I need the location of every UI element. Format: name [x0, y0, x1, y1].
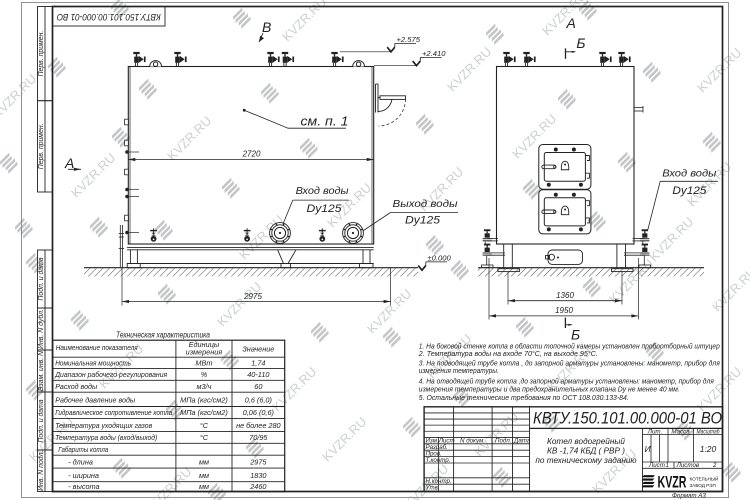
- svg-text:Подп.: Подп.: [495, 438, 511, 445]
- svg-text:Инв. N подл.: Инв. N подл.: [37, 451, 45, 491]
- svg-text:мм: мм: [199, 482, 209, 491]
- svg-text:- длина: - длина: [68, 458, 93, 467]
- svg-text:Масса: Масса: [671, 428, 690, 435]
- svg-text:2: 2: [712, 462, 717, 469]
- svg-text:Техническая характеристика: Техническая характеристика: [116, 331, 210, 340]
- svg-text:°С: °С: [200, 433, 209, 442]
- svg-text:не более 280: не более 280: [236, 421, 281, 430]
- svg-text:по техническому заданию: по техническому заданию: [535, 456, 636, 465]
- svg-text:40-110: 40-110: [247, 370, 269, 379]
- svg-text:мм: мм: [199, 471, 209, 480]
- svg-text:Значение: Значение: [242, 345, 274, 354]
- svg-text:N докум.: N докум.: [460, 438, 485, 445]
- svg-text:70/95: 70/95: [249, 433, 268, 442]
- svg-text:Листов: Листов: [676, 462, 700, 469]
- svg-text:ЗАВОД РЭП: ЗАВОД РЭП: [690, 483, 716, 488]
- svg-text:- высота: - высота: [68, 482, 99, 491]
- svg-text:Перв. примен.: Перв. примен.: [38, 31, 45, 77]
- svg-text:Т.контр.: Т.контр.: [426, 457, 451, 464]
- svg-text:см. п. 1: см. п. 1: [301, 115, 349, 129]
- svg-text:Номинальная мощность: Номинальная мощность: [55, 358, 131, 367]
- svg-text:МПа (кгс/см2): МПа (кгс/см2): [180, 396, 228, 405]
- svg-text:И: И: [645, 444, 652, 454]
- svg-text:Вход воды: Вход воды: [662, 168, 716, 180]
- svg-text:1: 1: [666, 462, 669, 469]
- svg-text:1,74: 1,74: [251, 358, 265, 367]
- svg-text:измерения: измерения: [186, 348, 223, 357]
- svg-text:Температура уходящих газов: Температура уходящих газов: [55, 421, 152, 430]
- svg-text:Котел водогрейный: Котел водогрейный: [547, 437, 625, 446]
- svg-text:В: В: [262, 19, 271, 35]
- svg-text:Формат А3: Формат А3: [672, 493, 706, 500]
- svg-text:Dy125: Dy125: [405, 215, 441, 227]
- svg-text:Подп. и дата: Подп. и дата: [37, 399, 45, 442]
- svg-text:+2.410: +2.410: [422, 49, 446, 58]
- svg-text:Вход воды: Вход воды: [296, 185, 349, 197]
- svg-text:0,06 (0,6): 0,06 (0,6): [243, 408, 274, 417]
- svg-text:МПа (кгс/см2): МПа (кгс/см2): [180, 408, 228, 417]
- svg-text:м3/ч: м3/ч: [197, 382, 212, 391]
- svg-text:Утв.: Утв.: [425, 484, 440, 491]
- svg-text:КВ -1,74 КБД ( РВР ): КВ -1,74 КБД ( РВР ): [547, 447, 625, 456]
- svg-text:мм: мм: [199, 458, 209, 467]
- svg-text:2975: 2975: [249, 458, 267, 467]
- svg-text:КВТУ.150.101.00.000-01 ВО: КВТУ.150.101.00.000-01 ВО: [533, 409, 722, 428]
- svg-text:°С: °С: [200, 421, 209, 430]
- svg-text:Рабочее давление воды: Рабочее давление воды: [55, 396, 136, 405]
- svg-text:Расход воды: Расход воды: [55, 382, 98, 391]
- svg-text:Гидравлическое сопротивление к: Гидравлическое сопротивление котла: [55, 408, 172, 417]
- svg-text:КОТЕЛЬНЫЙ: КОТЕЛЬНЫЙ: [690, 475, 719, 482]
- svg-text:Габариты котла: Габариты котла: [58, 445, 108, 454]
- svg-text:Масштаб: Масштаб: [697, 428, 720, 435]
- svg-text:Дата: Дата: [513, 438, 531, 445]
- svg-text:измерения температуры.: измерения температуры.: [419, 366, 499, 375]
- svg-text:2975: 2975: [243, 292, 262, 301]
- svg-text:Dy125: Dy125: [672, 185, 707, 197]
- svg-text:KVZR: KVZR: [658, 474, 687, 492]
- svg-text:Взам. инв. N: Взам. инв. N: [38, 351, 45, 391]
- svg-text:2. Температура воды на входе: 2. Температура воды на входе 70°С, на вы…: [418, 349, 598, 358]
- svg-text:МВт: МВт: [195, 358, 212, 367]
- svg-text:%: %: [201, 370, 208, 379]
- svg-text:1360: 1360: [556, 291, 574, 300]
- svg-text:Температура воды (вход/выход): Температура воды (вход/выход): [55, 433, 157, 442]
- svg-text:А: А: [566, 15, 576, 31]
- svg-text:1830: 1830: [250, 471, 266, 480]
- svg-text:Инв. N дубл.: Инв. N дубл.: [37, 309, 45, 349]
- svg-text:60: 60: [254, 382, 262, 391]
- svg-text:2460: 2460: [249, 482, 266, 491]
- svg-text:Б: Б: [571, 327, 580, 343]
- svg-text:КВТУ.150.101.00.000-01 ВО: КВТУ.150.101.00.000-01 ВО: [57, 12, 161, 22]
- svg-text:1:20: 1:20: [700, 444, 717, 454]
- svg-text:- ширина: - ширина: [68, 471, 99, 480]
- svg-text:Наименование показателя: Наименование показателя: [56, 343, 138, 352]
- svg-text:Выход воды: Выход воды: [393, 198, 458, 210]
- svg-text:А: А: [64, 155, 74, 171]
- svg-text:Перв. примен.: Перв. примен.: [38, 123, 45, 169]
- svg-text:0,6 (6,0): 0,6 (6,0): [245, 396, 272, 405]
- svg-text:±0.000: ±0.000: [428, 254, 452, 263]
- svg-text:1950: 1950: [555, 306, 573, 315]
- svg-text:Диапазон рабочего регулировани: Диапазон рабочего регулирования: [54, 370, 167, 379]
- svg-text:Лит.: Лит.: [647, 428, 663, 435]
- svg-text:2720: 2720: [242, 150, 261, 159]
- svg-text:+2.575: +2.575: [397, 35, 421, 44]
- svg-text:Подп. и дата: Подп. и дата: [37, 257, 45, 300]
- svg-text:5. Остальные технические треб: 5. Остальные технические требования по О…: [419, 393, 629, 402]
- svg-text:Dy125: Dy125: [307, 203, 343, 215]
- svg-text:Б: Б: [576, 35, 585, 51]
- svg-text:Лист: Лист: [648, 462, 665, 469]
